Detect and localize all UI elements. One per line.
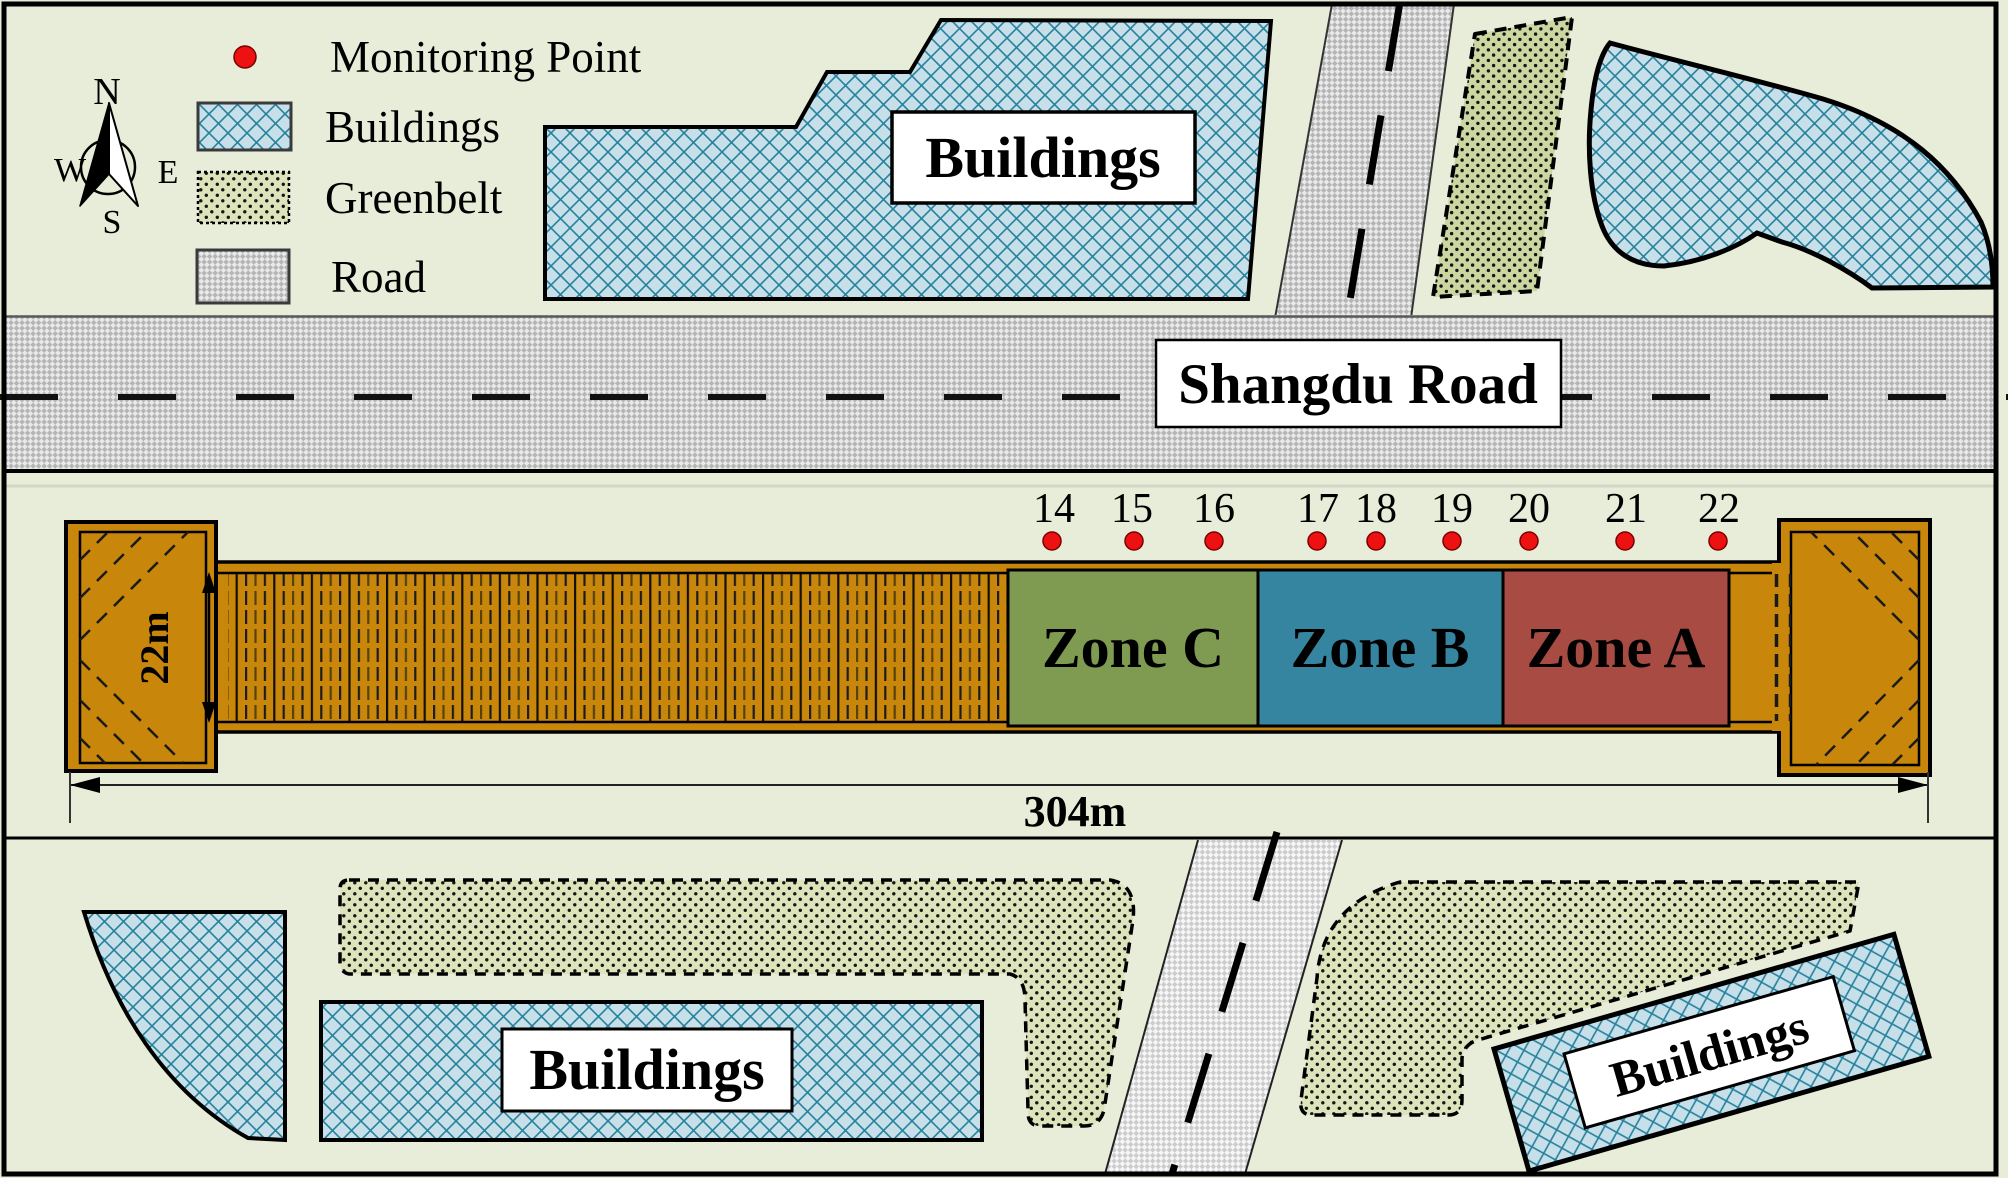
svg-text:Zone A: Zone A (1527, 615, 1706, 680)
svg-text:19: 19 (1431, 486, 1473, 532)
svg-text:Buildings: Buildings (925, 125, 1160, 190)
svg-text:17: 17 (1297, 486, 1339, 532)
svg-text:18: 18 (1355, 486, 1397, 532)
svg-text:Monitoring Point: Monitoring Point (330, 32, 642, 82)
svg-text:Zone B: Zone B (1291, 615, 1470, 680)
svg-text:N: N (93, 71, 120, 113)
svg-text:22m: 22m (132, 611, 177, 684)
svg-text:16: 16 (1193, 486, 1235, 532)
svg-text:21: 21 (1605, 486, 1647, 532)
svg-text:Shangdu Road: Shangdu Road (1178, 353, 1538, 416)
svg-text:304m: 304m (1024, 787, 1127, 836)
svg-text:14: 14 (1033, 486, 1075, 532)
svg-text:15: 15 (1111, 486, 1153, 532)
svg-text:S: S (103, 204, 122, 241)
svg-text:20: 20 (1508, 486, 1550, 532)
svg-text:W: W (54, 152, 87, 189)
svg-text:Buildings: Buildings (529, 1037, 764, 1102)
svg-text:22: 22 (1698, 486, 1740, 532)
svg-text:Road: Road (331, 252, 426, 302)
svg-text:Buildings: Buildings (325, 102, 500, 152)
svg-text:E: E (158, 154, 179, 191)
svg-text:Zone C: Zone C (1042, 615, 1224, 680)
svg-text:Greenbelt: Greenbelt (325, 173, 503, 223)
